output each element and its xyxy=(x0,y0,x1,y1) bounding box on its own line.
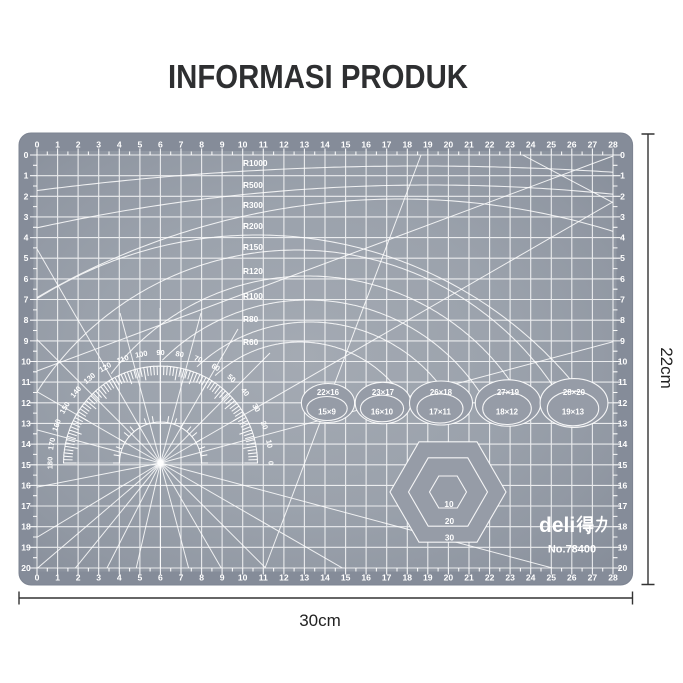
svg-text:24: 24 xyxy=(526,573,536,583)
svg-text:23: 23 xyxy=(505,573,515,583)
svg-text:R80: R80 xyxy=(243,314,259,324)
svg-text:24: 24 xyxy=(526,140,536,150)
svg-text:16: 16 xyxy=(618,480,628,490)
svg-text:3: 3 xyxy=(96,140,101,150)
svg-text:11: 11 xyxy=(21,377,30,387)
svg-text:2: 2 xyxy=(24,191,29,201)
svg-text:20: 20 xyxy=(444,573,454,583)
svg-text:19: 19 xyxy=(423,140,433,150)
svg-text:21: 21 xyxy=(464,573,474,583)
svg-text:11: 11 xyxy=(259,573,268,583)
svg-text:30: 30 xyxy=(445,533,455,543)
svg-text:R60: R60 xyxy=(243,337,259,347)
svg-text:26×18: 26×18 xyxy=(430,388,453,397)
svg-text:12: 12 xyxy=(618,398,628,408)
svg-text:9: 9 xyxy=(220,573,225,583)
svg-text:R1000: R1000 xyxy=(243,158,268,168)
svg-text:27×19: 27×19 xyxy=(497,388,520,397)
svg-text:3: 3 xyxy=(96,573,101,583)
svg-text:14: 14 xyxy=(320,140,330,150)
svg-text:15: 15 xyxy=(21,460,31,470)
svg-text:0: 0 xyxy=(267,461,276,465)
svg-text:14: 14 xyxy=(320,573,330,583)
svg-text:0: 0 xyxy=(35,573,40,583)
svg-text:10: 10 xyxy=(264,439,274,449)
svg-text:9: 9 xyxy=(220,140,225,150)
svg-text:15×9: 15×9 xyxy=(318,408,336,417)
svg-text:180: 180 xyxy=(45,457,54,470)
svg-text:13: 13 xyxy=(618,418,628,428)
svg-text:16: 16 xyxy=(361,140,371,150)
svg-text:10: 10 xyxy=(444,499,454,509)
svg-text:4: 4 xyxy=(620,233,625,243)
svg-text:5: 5 xyxy=(138,140,143,150)
svg-text:9: 9 xyxy=(620,336,625,346)
svg-text:15: 15 xyxy=(618,460,628,470)
svg-text:14: 14 xyxy=(21,439,31,449)
svg-text:6: 6 xyxy=(158,140,163,150)
svg-text:12: 12 xyxy=(279,140,289,150)
svg-text:1: 1 xyxy=(55,140,60,150)
svg-text:16×10: 16×10 xyxy=(371,408,394,417)
svg-text:20: 20 xyxy=(21,563,31,573)
svg-text:8: 8 xyxy=(24,315,29,325)
svg-text:8: 8 xyxy=(199,573,204,583)
svg-text:7: 7 xyxy=(179,573,184,583)
svg-text:0: 0 xyxy=(620,150,625,160)
svg-text:2: 2 xyxy=(76,573,81,583)
svg-text:deli: deli xyxy=(539,514,575,537)
svg-text:10: 10 xyxy=(21,357,31,367)
svg-text:15: 15 xyxy=(341,573,351,583)
svg-text:3: 3 xyxy=(620,212,625,222)
svg-text:11: 11 xyxy=(259,140,268,150)
svg-text:27: 27 xyxy=(588,573,598,583)
svg-text:R500: R500 xyxy=(243,180,263,190)
svg-text:5: 5 xyxy=(24,253,29,263)
svg-text:0: 0 xyxy=(35,140,40,150)
svg-text:15: 15 xyxy=(341,140,351,150)
svg-text:19: 19 xyxy=(21,542,31,552)
svg-text:2: 2 xyxy=(76,140,81,150)
svg-text:10: 10 xyxy=(238,140,248,150)
svg-text:R120: R120 xyxy=(243,266,263,276)
svg-text:17: 17 xyxy=(382,140,392,150)
svg-text:16: 16 xyxy=(361,573,371,583)
svg-text:20: 20 xyxy=(444,140,454,150)
svg-text:4: 4 xyxy=(24,233,29,243)
svg-text:21: 21 xyxy=(464,140,474,150)
svg-text:0: 0 xyxy=(24,150,29,160)
svg-text:9: 9 xyxy=(24,336,29,346)
svg-text:R150: R150 xyxy=(243,242,263,252)
svg-text:8: 8 xyxy=(620,315,625,325)
svg-text:6: 6 xyxy=(158,573,163,583)
svg-text:23: 23 xyxy=(505,140,515,150)
svg-text:18: 18 xyxy=(21,522,31,532)
svg-text:4: 4 xyxy=(117,140,122,150)
svg-text:20: 20 xyxy=(445,516,455,526)
svg-text:10: 10 xyxy=(238,573,248,583)
svg-text:16: 16 xyxy=(21,480,31,490)
svg-text:28×20: 28×20 xyxy=(563,388,586,397)
svg-text:7: 7 xyxy=(24,295,29,305)
svg-text:18: 18 xyxy=(618,522,628,532)
svg-text:3: 3 xyxy=(24,212,29,222)
svg-text:22cm: 22cm xyxy=(657,347,676,389)
svg-text:INFORMASI PRODUK: INFORMASI PRODUK xyxy=(168,58,468,95)
svg-text:18: 18 xyxy=(403,140,413,150)
svg-text:90: 90 xyxy=(156,348,164,357)
svg-text:22: 22 xyxy=(485,140,495,150)
svg-text:11: 11 xyxy=(618,377,627,387)
svg-text:17: 17 xyxy=(382,573,392,583)
svg-text:80: 80 xyxy=(175,349,185,359)
svg-text:2: 2 xyxy=(620,191,625,201)
svg-text:12: 12 xyxy=(279,573,289,583)
svg-text:26: 26 xyxy=(567,573,577,583)
svg-text:12: 12 xyxy=(21,398,31,408)
svg-text:18: 18 xyxy=(403,573,413,583)
svg-text:14: 14 xyxy=(618,439,628,449)
svg-text:19: 19 xyxy=(618,542,628,552)
svg-text:17: 17 xyxy=(618,501,628,511)
svg-text:5: 5 xyxy=(138,573,143,583)
svg-text:1: 1 xyxy=(55,573,60,583)
svg-text:R200: R200 xyxy=(243,221,263,231)
svg-text:1: 1 xyxy=(620,171,625,181)
svg-text:7: 7 xyxy=(179,140,184,150)
svg-text:18×12: 18×12 xyxy=(496,408,519,417)
svg-text:13: 13 xyxy=(300,140,310,150)
svg-text:19: 19 xyxy=(423,573,433,583)
svg-text:30cm: 30cm xyxy=(299,611,341,630)
svg-text:26: 26 xyxy=(567,140,577,150)
svg-text:No.78400: No.78400 xyxy=(548,544,596,556)
svg-text:10: 10 xyxy=(618,357,628,367)
svg-text:1: 1 xyxy=(24,171,29,181)
svg-text:5: 5 xyxy=(620,253,625,263)
svg-text:25: 25 xyxy=(547,140,557,150)
svg-text:7: 7 xyxy=(620,295,625,305)
svg-text:22×16: 22×16 xyxy=(317,388,340,397)
svg-text:R300: R300 xyxy=(243,200,263,210)
svg-text:19×13: 19×13 xyxy=(562,408,585,417)
svg-text:13: 13 xyxy=(300,573,310,583)
svg-text:6: 6 xyxy=(24,274,29,284)
svg-text:23×17: 23×17 xyxy=(372,388,395,397)
svg-text:27: 27 xyxy=(588,140,598,150)
svg-text:17: 17 xyxy=(21,501,31,511)
svg-text:4: 4 xyxy=(117,573,122,583)
svg-text:22: 22 xyxy=(485,573,495,583)
svg-text:6: 6 xyxy=(620,274,625,284)
svg-text:8: 8 xyxy=(199,140,204,150)
svg-text:17×11: 17×11 xyxy=(429,408,451,417)
svg-text:13: 13 xyxy=(21,418,31,428)
svg-text:25: 25 xyxy=(547,573,557,583)
svg-text:20: 20 xyxy=(618,563,628,573)
svg-text:28: 28 xyxy=(608,573,618,583)
svg-text:28: 28 xyxy=(608,140,618,150)
